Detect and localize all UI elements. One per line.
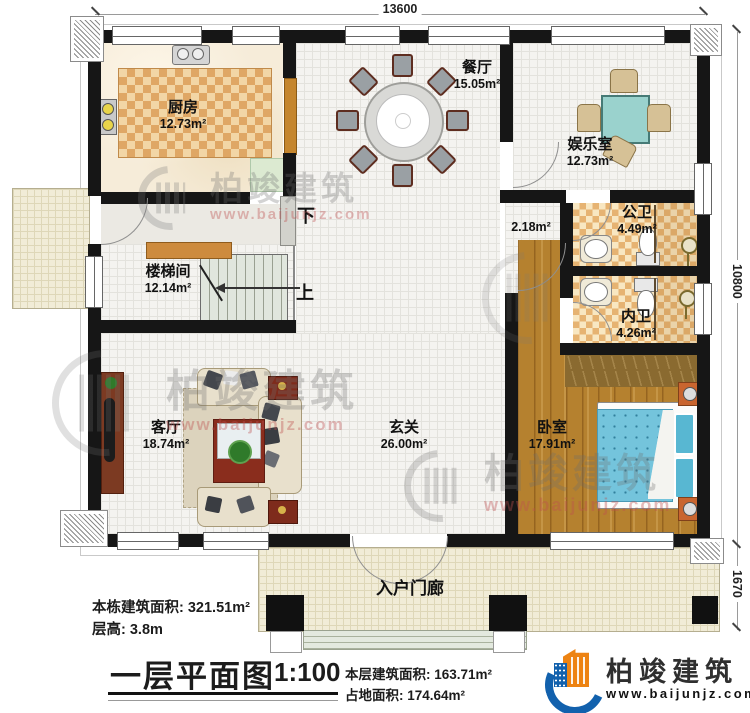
window xyxy=(117,532,179,550)
wall-segment xyxy=(573,266,697,276)
shower-zone-private xyxy=(656,276,697,343)
wall-segment xyxy=(500,43,513,142)
corner-column xyxy=(690,24,722,56)
stair-rail-line xyxy=(293,244,295,320)
room-area: 4.26m² xyxy=(616,326,656,340)
plant-icon xyxy=(228,440,252,464)
corner-column xyxy=(690,538,724,564)
window xyxy=(428,26,510,45)
kitchen-sink-bowl xyxy=(177,48,189,60)
room-area: 4.49m² xyxy=(617,222,657,236)
room-label-foyer: 玄关 26.00m² xyxy=(381,420,428,451)
window xyxy=(551,26,665,45)
wall-segment xyxy=(267,534,350,547)
hallway-floor xyxy=(518,240,560,343)
sofa-pillow xyxy=(205,496,223,514)
porch-column xyxy=(266,595,304,631)
tv-icon xyxy=(104,398,115,462)
window xyxy=(694,283,712,335)
window xyxy=(345,26,400,45)
dining-chair xyxy=(446,110,469,131)
room-name: 楼梯间 xyxy=(145,264,192,281)
stair-arrow-icon xyxy=(215,283,225,293)
room-area: 12.14m² xyxy=(145,281,192,295)
game-chair xyxy=(647,104,671,132)
building-total-area-text: 本栋建筑面积: 321.51m² xyxy=(92,596,250,617)
room-name: 玄关 xyxy=(381,420,428,437)
wall-segment xyxy=(88,320,296,333)
dimension-label-porch-depth: 1670 xyxy=(730,566,744,602)
wall-segment xyxy=(508,30,551,43)
room-name: 公卫 xyxy=(617,205,657,222)
stair-down-label: 下 xyxy=(297,202,315,228)
window xyxy=(232,26,280,45)
vestibule-area-label: 2.18m² xyxy=(511,220,551,234)
brand-url: www.baijunjz.com xyxy=(606,686,750,701)
wall-segment xyxy=(500,190,566,203)
window xyxy=(694,163,712,215)
window xyxy=(550,532,674,550)
floor-height-text: 层高: 3.8m xyxy=(92,618,163,639)
room-name: 内卫 xyxy=(616,309,656,326)
side-patio-floor xyxy=(12,188,90,309)
corner-column xyxy=(70,16,104,62)
brand-logo-icon xyxy=(545,646,601,704)
room-name: 厨房 xyxy=(160,100,207,117)
logo-building-blue-icon xyxy=(554,663,567,687)
side-table-knob xyxy=(278,382,286,390)
room-label-entertainment: 娱乐室 12.73m² xyxy=(567,137,614,168)
brand-name: 柏竣建筑 xyxy=(606,650,738,689)
dining-table-center xyxy=(395,113,411,129)
room-name: 卧室 xyxy=(529,420,576,437)
wall-segment xyxy=(177,534,203,547)
plan-title: 一层平面图 xyxy=(110,651,275,696)
wall-segment xyxy=(278,30,345,43)
room-area: 12.73m² xyxy=(567,154,614,168)
corridor-floor xyxy=(101,204,294,244)
window xyxy=(203,532,269,550)
shower-icon xyxy=(681,237,698,254)
room-area: 15.05m² xyxy=(454,77,501,91)
room-label-stairwell: 楼梯间 12.14m² xyxy=(145,264,192,295)
corner-column xyxy=(60,510,108,547)
room-name: 娱乐室 xyxy=(567,137,614,154)
bed-sheet-fold xyxy=(648,410,674,499)
wall-segment xyxy=(560,203,573,298)
room-label-porch: 入户门廊 xyxy=(376,574,444,599)
room-area: 12.73m² xyxy=(160,117,207,131)
porch-column xyxy=(692,596,718,624)
room-label-living: 客厅 18.74m² xyxy=(143,420,190,451)
shower-pole xyxy=(687,252,689,266)
plan-scale: 1:100 xyxy=(274,657,341,688)
wall-segment xyxy=(200,30,232,43)
room-area: 17.91m² xyxy=(529,437,576,451)
room-name: 客厅 xyxy=(143,420,190,437)
room-name: 餐厅 xyxy=(454,60,501,77)
dimension-label-height: 10800 xyxy=(730,260,744,303)
bed-pillow xyxy=(674,457,695,499)
wall-segment xyxy=(505,293,518,534)
dining-chair xyxy=(392,164,413,187)
bathroom-sink-basin xyxy=(584,239,608,259)
wall-segment xyxy=(88,244,101,256)
nightstand-lamp-icon xyxy=(683,502,697,516)
sofa-pillow xyxy=(223,370,239,386)
half-wall-stub xyxy=(280,196,296,246)
room-area: 26.00m² xyxy=(381,437,428,451)
stove-burner xyxy=(102,103,114,115)
wall-segment xyxy=(283,43,296,78)
stair-up-label: 上 xyxy=(296,279,314,305)
nightstand-lamp-icon xyxy=(683,387,697,401)
dining-chair xyxy=(336,110,359,131)
wall-segment xyxy=(101,192,250,204)
wardrobe-rod xyxy=(567,369,695,371)
floor-area-text: 本层建筑面积: 163.71m² xyxy=(345,663,492,683)
bed-pillow xyxy=(674,413,695,455)
bathroom-sink-basin xyxy=(584,282,608,302)
room-label-public-bath: 公卫 4.49m² xyxy=(617,205,657,236)
sliding-door xyxy=(284,78,297,155)
kitchen-sink-bowl xyxy=(192,48,204,60)
room-label-dining: 餐厅 15.05m² xyxy=(454,60,501,91)
floor-plan-page: 13600 10800 1670 厨房 12.73m² 餐厅 15.05m² 娱… xyxy=(0,0,750,713)
wall-segment xyxy=(697,333,710,547)
plant-icon xyxy=(105,377,117,389)
window xyxy=(85,256,103,308)
room-area: 18.74m² xyxy=(143,437,190,451)
stair-direction-line xyxy=(224,287,300,289)
dimension-label-width: 13600 xyxy=(379,2,422,16)
porch-column-base xyxy=(270,631,302,653)
porch-column xyxy=(489,595,527,631)
stove-burner xyxy=(102,119,114,131)
wall-segment xyxy=(447,534,550,547)
footprint-area-text: 占地面积: 174.64m² xyxy=(345,684,465,704)
stair-cabinet xyxy=(146,242,232,259)
wall-segment xyxy=(560,343,710,355)
game-chair xyxy=(577,104,601,132)
game-chair xyxy=(610,69,638,93)
dining-chair xyxy=(392,54,413,77)
window xyxy=(112,26,202,45)
porch-column-base xyxy=(493,631,525,653)
room-label-bedroom: 卧室 17.91m² xyxy=(529,420,576,451)
wall-segment xyxy=(697,213,710,283)
room-label-private-bath: 内卫 4.26m² xyxy=(616,309,656,340)
side-table-knob xyxy=(278,506,286,514)
room-label-kitchen: 厨房 12.73m² xyxy=(160,100,207,131)
shower-zone-public xyxy=(656,203,697,266)
wall-segment xyxy=(398,30,428,43)
kitchen-door-mat xyxy=(250,158,285,192)
shower-pole xyxy=(685,305,687,319)
